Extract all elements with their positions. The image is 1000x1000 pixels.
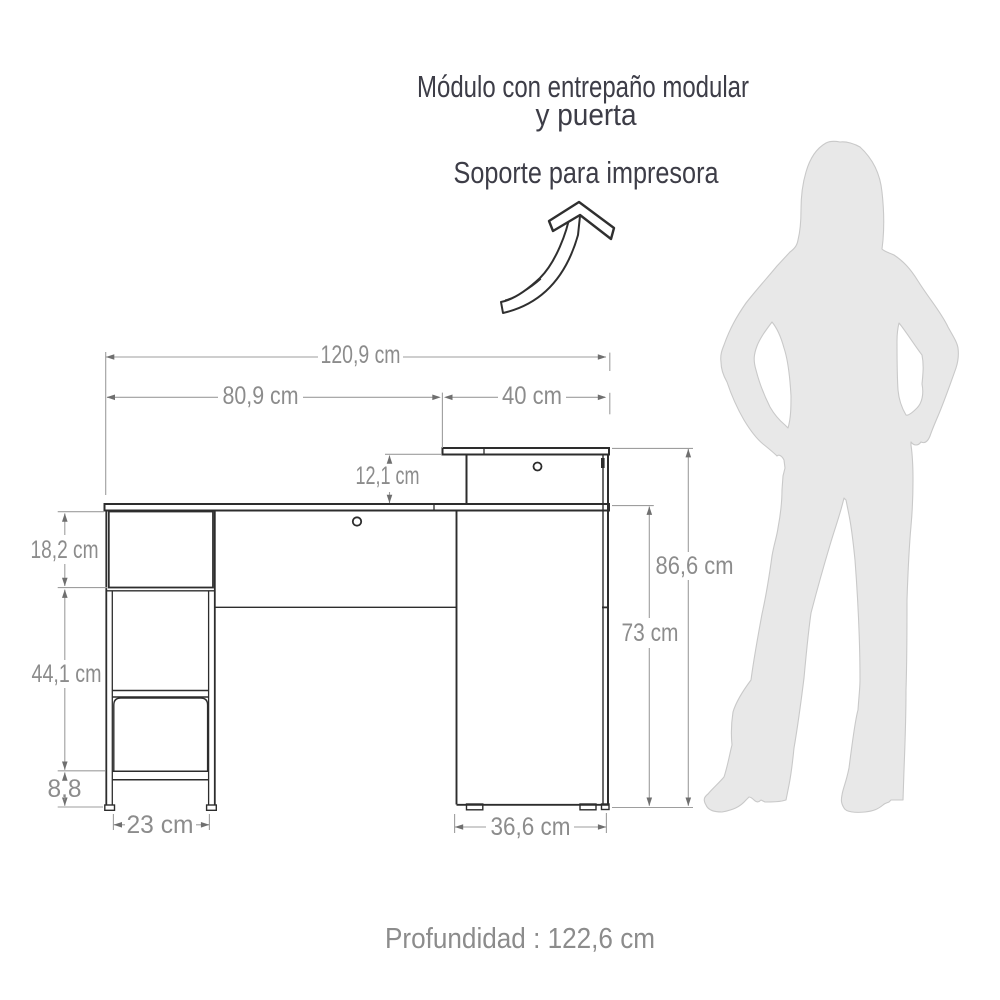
- svg-text:18,2 cm: 18,2 cm: [31, 536, 99, 564]
- svg-text:120,9 cm: 120,9 cm: [321, 341, 401, 369]
- svg-text:86,6 cm: 86,6 cm: [656, 552, 734, 580]
- svg-text:12,1 cm: 12,1 cm: [356, 462, 420, 490]
- svg-text:8,8: 8,8: [48, 775, 82, 803]
- svg-text:44,1 cm: 44,1 cm: [32, 660, 102, 688]
- svg-text:36,6 cm: 36,6 cm: [491, 813, 571, 841]
- svg-text:80,9 cm: 80,9 cm: [223, 382, 299, 410]
- svg-text:23 cm: 23 cm: [127, 811, 194, 839]
- svg-text:Soporte para impresora: Soporte para impresora: [454, 155, 720, 190]
- svg-text:y puerta: y puerta: [536, 97, 638, 132]
- svg-text:40 cm: 40 cm: [502, 382, 562, 410]
- svg-text:73 cm: 73 cm: [622, 619, 679, 647]
- svg-text:Profundidad : 122,6 cm: Profundidad : 122,6 cm: [385, 923, 655, 955]
